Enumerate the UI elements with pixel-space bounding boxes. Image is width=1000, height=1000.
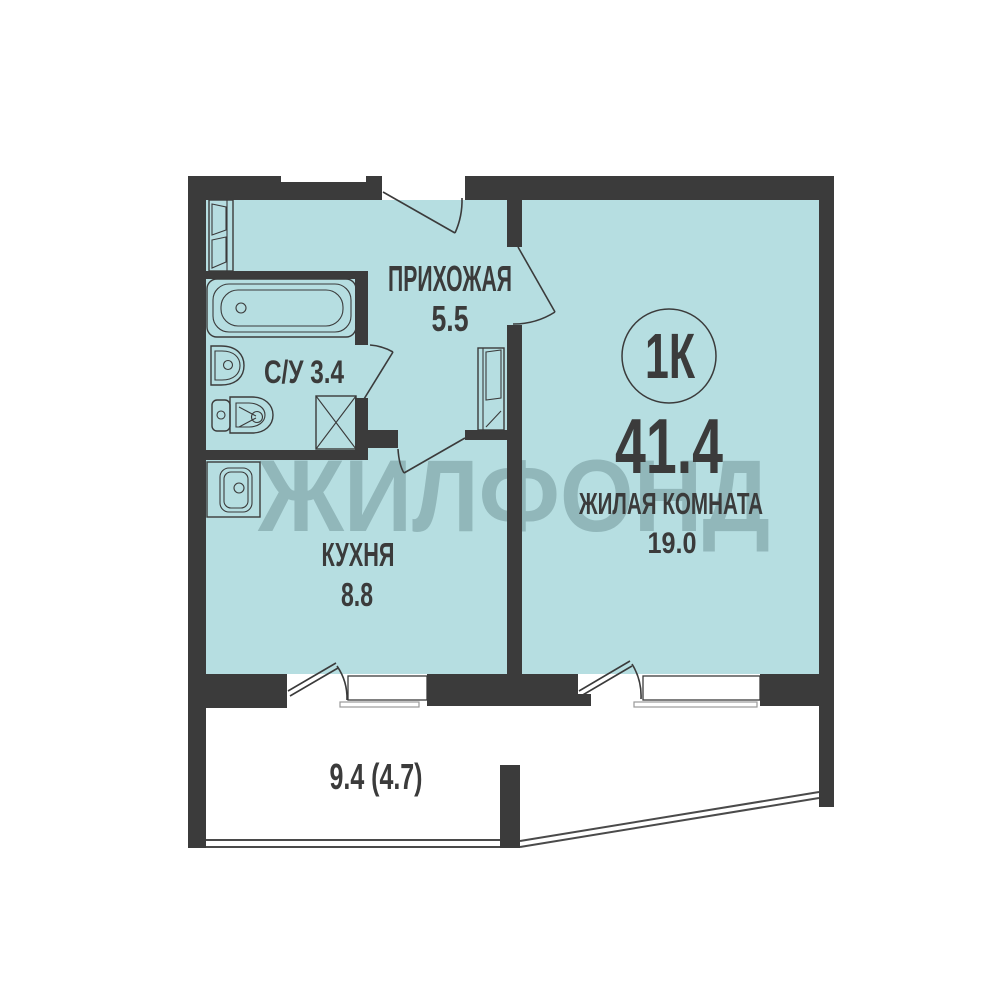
floor-plan: ЖИЛФОНД bbox=[0, 0, 1000, 1000]
wall-bathroom-right-upper bbox=[355, 271, 368, 345]
balcony-railing-diagonal bbox=[520, 792, 819, 847]
balcony-railing-horizontal bbox=[206, 840, 500, 847]
hallway-label: ПРИХОЖАЯ bbox=[388, 258, 512, 299]
wall-bottom-center bbox=[427, 674, 578, 706]
floor-plan-page: ЖИЛФОНД bbox=[0, 0, 1000, 1000]
wall-bathroom-bottom bbox=[188, 450, 368, 460]
living-room-area: 19.0 bbox=[648, 527, 697, 560]
hallway-area: 5.5 bbox=[432, 298, 469, 339]
wall-partition-stub bbox=[507, 200, 522, 247]
balcony-pillar bbox=[500, 765, 520, 848]
apartment-type-label: 1К bbox=[645, 320, 696, 392]
living-room-window-sill bbox=[634, 702, 757, 707]
wall-bottom-stub bbox=[578, 694, 591, 706]
wall-bottom-right bbox=[760, 674, 834, 706]
living-room-label: ЖИЛАЯ КОМНАТА bbox=[578, 486, 763, 521]
living-room-window bbox=[643, 676, 760, 700]
wall-kitchen-step bbox=[368, 430, 398, 448]
kitchen-area: 8.8 bbox=[341, 576, 373, 613]
wall-bottom-kitchen bbox=[188, 674, 287, 708]
balcony-area-label: 9.4 (4.7) bbox=[330, 756, 423, 797]
wall-right bbox=[819, 176, 834, 807]
top-wall-niche bbox=[281, 169, 366, 182]
wall-top-right bbox=[465, 176, 834, 200]
bathroom-label: С/У 3.4 bbox=[264, 354, 344, 390]
kitchen-window bbox=[348, 676, 427, 700]
kitchen-label: КУХНЯ bbox=[322, 536, 395, 573]
total-area-label: 41.4 bbox=[615, 402, 723, 490]
kitchen-window-sill bbox=[340, 702, 419, 707]
wall-partition-main bbox=[507, 325, 522, 674]
wall-bathroom-top bbox=[188, 271, 368, 279]
